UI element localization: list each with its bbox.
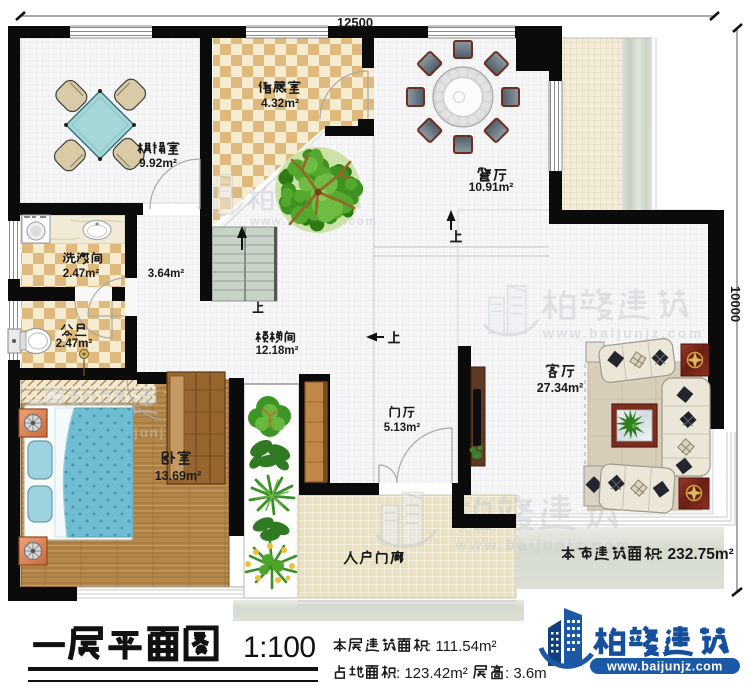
svg-text:3.64m²: 3.64m² <box>148 268 185 280</box>
svg-text:: 123.42m²: : 123.42m² <box>396 665 468 682</box>
svg-text:www.baijunjz.com: www.baijunjz.com <box>606 660 723 674</box>
svg-text:12500: 12500 <box>337 15 373 30</box>
svg-text:www.baijunjz.com: www.baijunjz.com <box>454 537 632 554</box>
svg-text:13.69m²: 13.69m² <box>155 469 202 483</box>
svg-text:: 3.6m: : 3.6m <box>505 665 547 682</box>
svg-text:10.91m²: 10.91m² <box>469 180 514 194</box>
svg-text:1:100: 1:100 <box>243 631 316 664</box>
svg-text:9.92m²: 9.92m² <box>139 156 177 170</box>
svg-text:12.18m²: 12.18m² <box>256 345 299 357</box>
svg-text:5.13m²: 5.13m² <box>384 422 421 434</box>
svg-text:: 111.54m²: : 111.54m² <box>427 638 496 655</box>
svg-text:10000: 10000 <box>728 286 743 322</box>
svg-text:: 232.75m²: : 232.75m² <box>658 546 734 563</box>
svg-text:www.baijunjz.com: www.baijunjz.com <box>542 325 704 341</box>
svg-text:4.32m²: 4.32m² <box>261 96 299 110</box>
svg-text:2.47m²: 2.47m² <box>63 268 100 280</box>
svg-text:2.47m²: 2.47m² <box>56 338 93 350</box>
svg-text:27.34m²: 27.34m² <box>537 381 584 395</box>
